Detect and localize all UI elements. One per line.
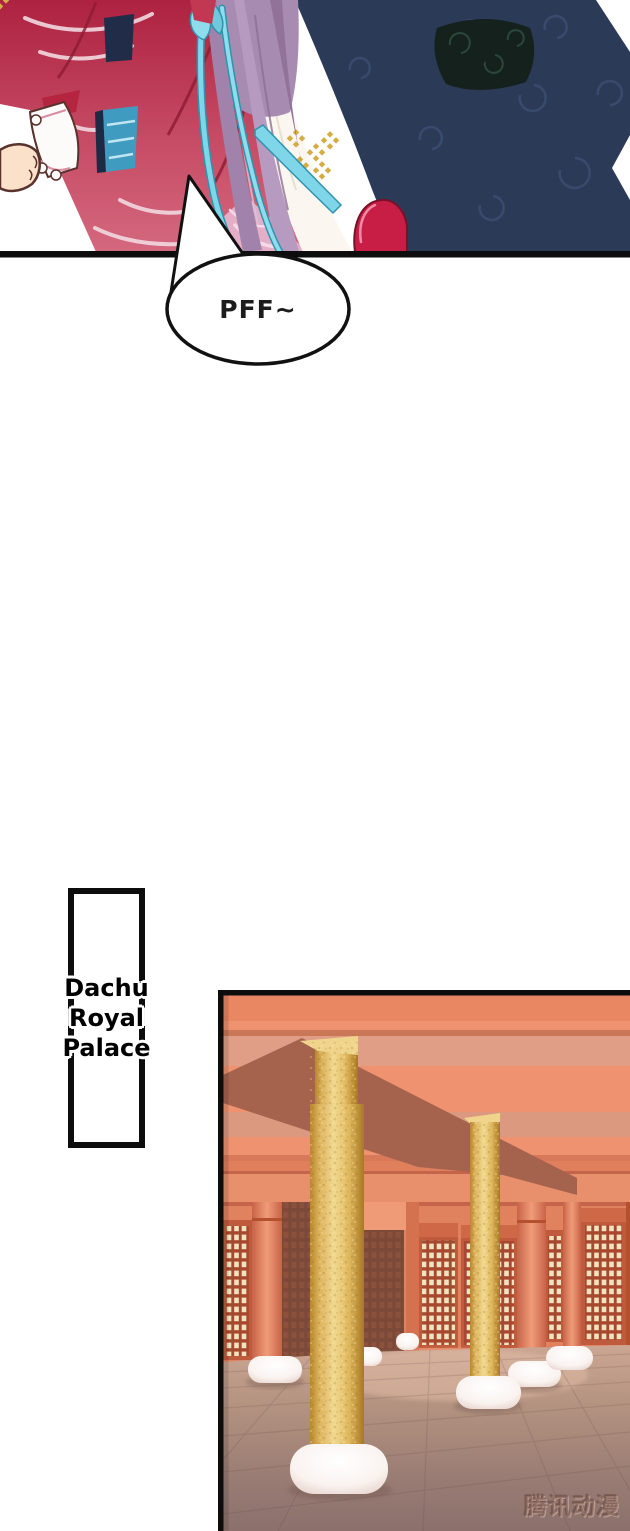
- pillar-base-cushion: [456, 1376, 521, 1409]
- watermark-text: 腾讯动漫: [524, 1487, 624, 1521]
- panel-top-border: [0, 251, 630, 258]
- location-label-line-2: Royal: [69, 1003, 144, 1033]
- location-label-line-1: Dachu: [64, 973, 149, 1003]
- pillar-base-cushion: [290, 1444, 388, 1494]
- fist: [0, 144, 40, 191]
- wall-pilaster: [252, 1202, 282, 1362]
- panel-palace-border-left: [218, 990, 224, 1531]
- palace-ceiling: [223, 995, 630, 1205]
- wall-pilaster: [361, 1202, 406, 1230]
- comic-page: PFF~ Dachu Royal Palace: [0, 0, 630, 1531]
- lattice-window: [419, 1223, 458, 1348]
- wall-pilaster: [517, 1202, 546, 1352]
- panel-palace-scene: [218, 990, 630, 1531]
- palace-back-wall: [223, 1202, 630, 1362]
- shadow-panel: [282, 1202, 310, 1358]
- panel-palace-border-top: [218, 990, 630, 996]
- robe-sash: [434, 19, 534, 90]
- cushion: [396, 1333, 419, 1350]
- cushion: [248, 1356, 302, 1383]
- wall-pilaster: [406, 1202, 419, 1355]
- cushion: [546, 1346, 593, 1370]
- speech-bubble-text: PFF~: [193, 295, 323, 324]
- lattice-window: [581, 1208, 626, 1345]
- location-label-line-3: Palace: [62, 1033, 150, 1063]
- lattice-window: [546, 1230, 563, 1342]
- location-label-box: Dachu Royal Palace: [68, 888, 145, 1148]
- shadow-panel: [363, 1230, 404, 1352]
- wall-pilaster: [563, 1202, 581, 1350]
